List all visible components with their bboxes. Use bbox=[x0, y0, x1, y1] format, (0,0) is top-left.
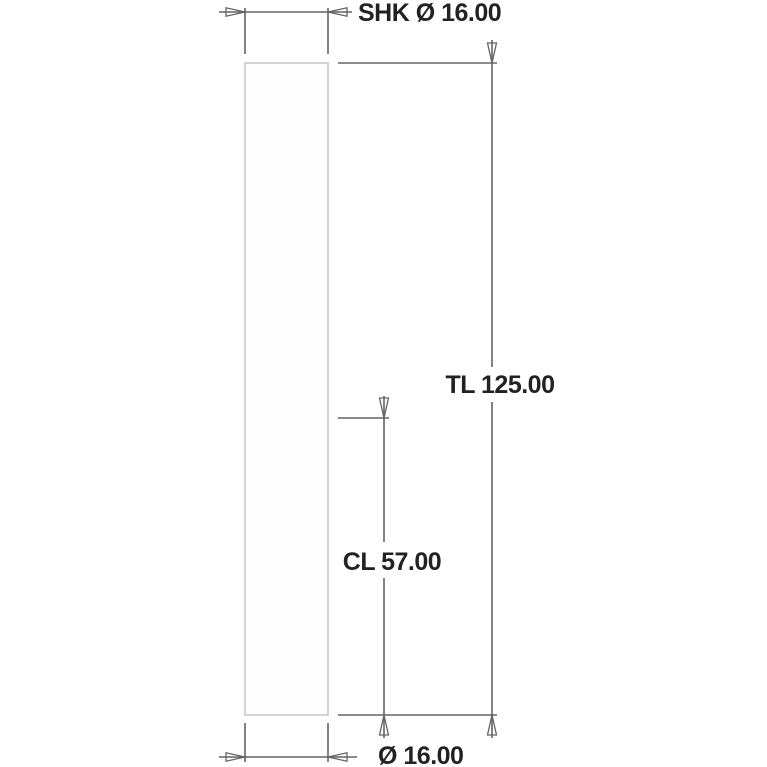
dimension-total-length: TL 125.00 bbox=[338, 40, 555, 738]
tool-dimension-drawing: SHK Ø 16.00 TL 125.00 CL 57.00 Ø 16. bbox=[0, 0, 767, 767]
drawing-canvas: SHK Ø 16.00 TL 125.00 CL 57.00 Ø 16. bbox=[0, 0, 767, 767]
dimension-cut-length: CL 57.00 bbox=[338, 396, 441, 738]
dimension-shank-diameter: SHK Ø 16.00 bbox=[219, 0, 501, 54]
dimension-label-shank: SHK Ø 16.00 bbox=[358, 0, 501, 27]
dimension-label-total-length: TL 125.00 bbox=[445, 371, 554, 399]
tool-body-outline bbox=[245, 63, 328, 715]
dimension-cut-diameter: Ø 16.00 bbox=[219, 723, 463, 767]
dimension-label-cut-diameter: Ø 16.00 bbox=[378, 742, 463, 767]
dimension-label-cut-length: CL 57.00 bbox=[343, 548, 441, 576]
